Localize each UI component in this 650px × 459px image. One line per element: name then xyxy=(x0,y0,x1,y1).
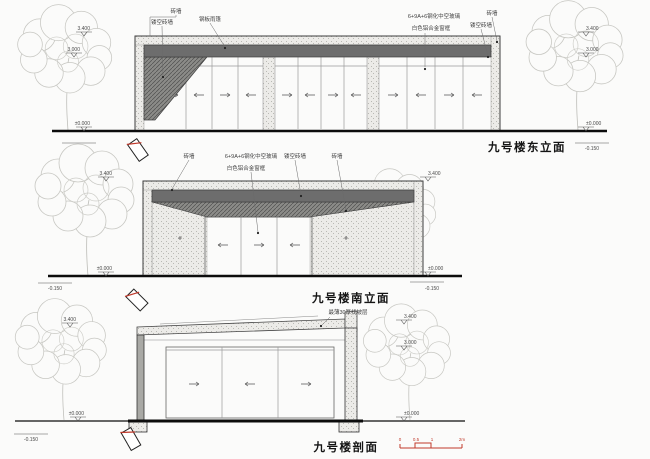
label-glazing: 6+9A+6钢化中空玻璃 xyxy=(225,152,278,160)
label-glazing: 6+9A+6钢化中空玻璃 xyxy=(408,12,461,20)
label-window-frame: 白色铝合金窗框 xyxy=(412,24,451,32)
perforated-brick-wedge xyxy=(144,57,207,120)
level-value: 3.000 xyxy=(67,47,80,53)
cut-wall-left xyxy=(137,335,144,421)
sliding-arrows xyxy=(218,243,300,247)
canopy-band xyxy=(144,45,491,57)
tree xyxy=(15,299,106,420)
east-glazing xyxy=(168,57,491,129)
architectural-drawing-canvas: 砖墙 镂空砖墙 钢板雨篷 6+9A+6钢化中空玻璃 白色铝合金窗框 砖墙 镂空砖… xyxy=(0,0,650,459)
section-glazing xyxy=(144,340,345,418)
label-perforated-brick: 镂空砖墙 xyxy=(151,18,174,26)
tree xyxy=(18,5,112,130)
level-value: 3.400 xyxy=(404,314,417,320)
level-value: 3.400 xyxy=(586,26,599,32)
label-brick-wall: 砖墙 xyxy=(170,7,182,15)
scale-tick: 1 xyxy=(431,437,434,442)
label-brick-wall: 砖墙 xyxy=(331,152,343,160)
brick-pier xyxy=(367,57,379,131)
level-value: ±0.000 xyxy=(97,266,112,272)
label-window-frame: 白色铝合金窗框 xyxy=(227,164,266,172)
level-value: ±0.000 xyxy=(404,411,419,417)
level-value: 3.400 xyxy=(99,171,112,177)
level-value: 3.400 xyxy=(428,171,441,177)
sliding-arrows xyxy=(189,382,311,386)
tree xyxy=(526,1,623,130)
tree xyxy=(35,144,134,276)
roof-slab xyxy=(137,319,345,335)
brick-pier xyxy=(263,57,275,131)
south-glazing xyxy=(205,217,312,276)
level-value: 3.000 xyxy=(404,340,417,346)
label-brick-wall: 砖墙 xyxy=(486,9,498,17)
east-elevation-drawing: 砖墙 镂空砖墙 钢板雨篷 6+9A+6钢化中空玻璃 白色铝合金窗框 砖墙 镂空砖… xyxy=(18,1,623,162)
level-value: -0.150 xyxy=(425,286,439,292)
scale-bar: 0 0.5 1 2m xyxy=(399,437,466,448)
building-section-drawing: 最薄30厚找坡层 3.400 ±0.000 -0.150 3.400 3.000… xyxy=(14,299,465,454)
level-value: ±0.000 xyxy=(75,121,90,127)
level-value: 3.000 xyxy=(586,47,599,53)
label-roof-screed: 最薄30厚找坡层 xyxy=(328,308,368,316)
level-value: -0.150 xyxy=(48,286,62,292)
level-value: -0.150 xyxy=(24,437,38,443)
section-cut-symbol xyxy=(127,137,150,162)
level-value: ±0.000 xyxy=(428,266,443,272)
canopy-band xyxy=(152,190,414,202)
level-value: ±0.000 xyxy=(586,121,601,127)
level-value: -0.150 xyxy=(585,146,599,152)
level-value: 3.400 xyxy=(63,317,76,323)
tree xyxy=(363,304,450,420)
scale-tick: 2m xyxy=(459,437,466,442)
label-canopy: 钢板雨篷 xyxy=(199,15,222,23)
label-perforated-brick: 镂空砖墙 xyxy=(284,152,307,160)
drawing-title-south: 九号楼南立面 xyxy=(311,291,390,305)
level-value: 3.400 xyxy=(77,26,90,32)
cut-wall-right xyxy=(345,328,357,421)
drawing-title-section: 九号楼剖面 xyxy=(313,440,379,454)
blueprint-page: 砖墙 镂空砖墙 钢板雨篷 6+9A+6钢化中空玻璃 白色铝合金窗框 砖墙 镂空砖… xyxy=(0,0,650,459)
drawing-title-east: 九号楼东立面 xyxy=(487,140,566,154)
scale-tick: 0.5 xyxy=(413,437,420,442)
scale-tick: 0 xyxy=(399,437,402,442)
section-cut-symbol xyxy=(125,287,149,311)
label-perforated-brick: 镂空砖墙 xyxy=(470,21,493,29)
south-elevation-drawing: 砖墙 6+9A+6钢化中空玻璃 白色铝合金窗框 镂空砖墙 砖墙 3.400 ±0… xyxy=(35,144,462,311)
label-brick-wall: 砖墙 xyxy=(183,152,195,160)
footing xyxy=(339,421,359,432)
level-value: ±0.000 xyxy=(69,411,84,417)
